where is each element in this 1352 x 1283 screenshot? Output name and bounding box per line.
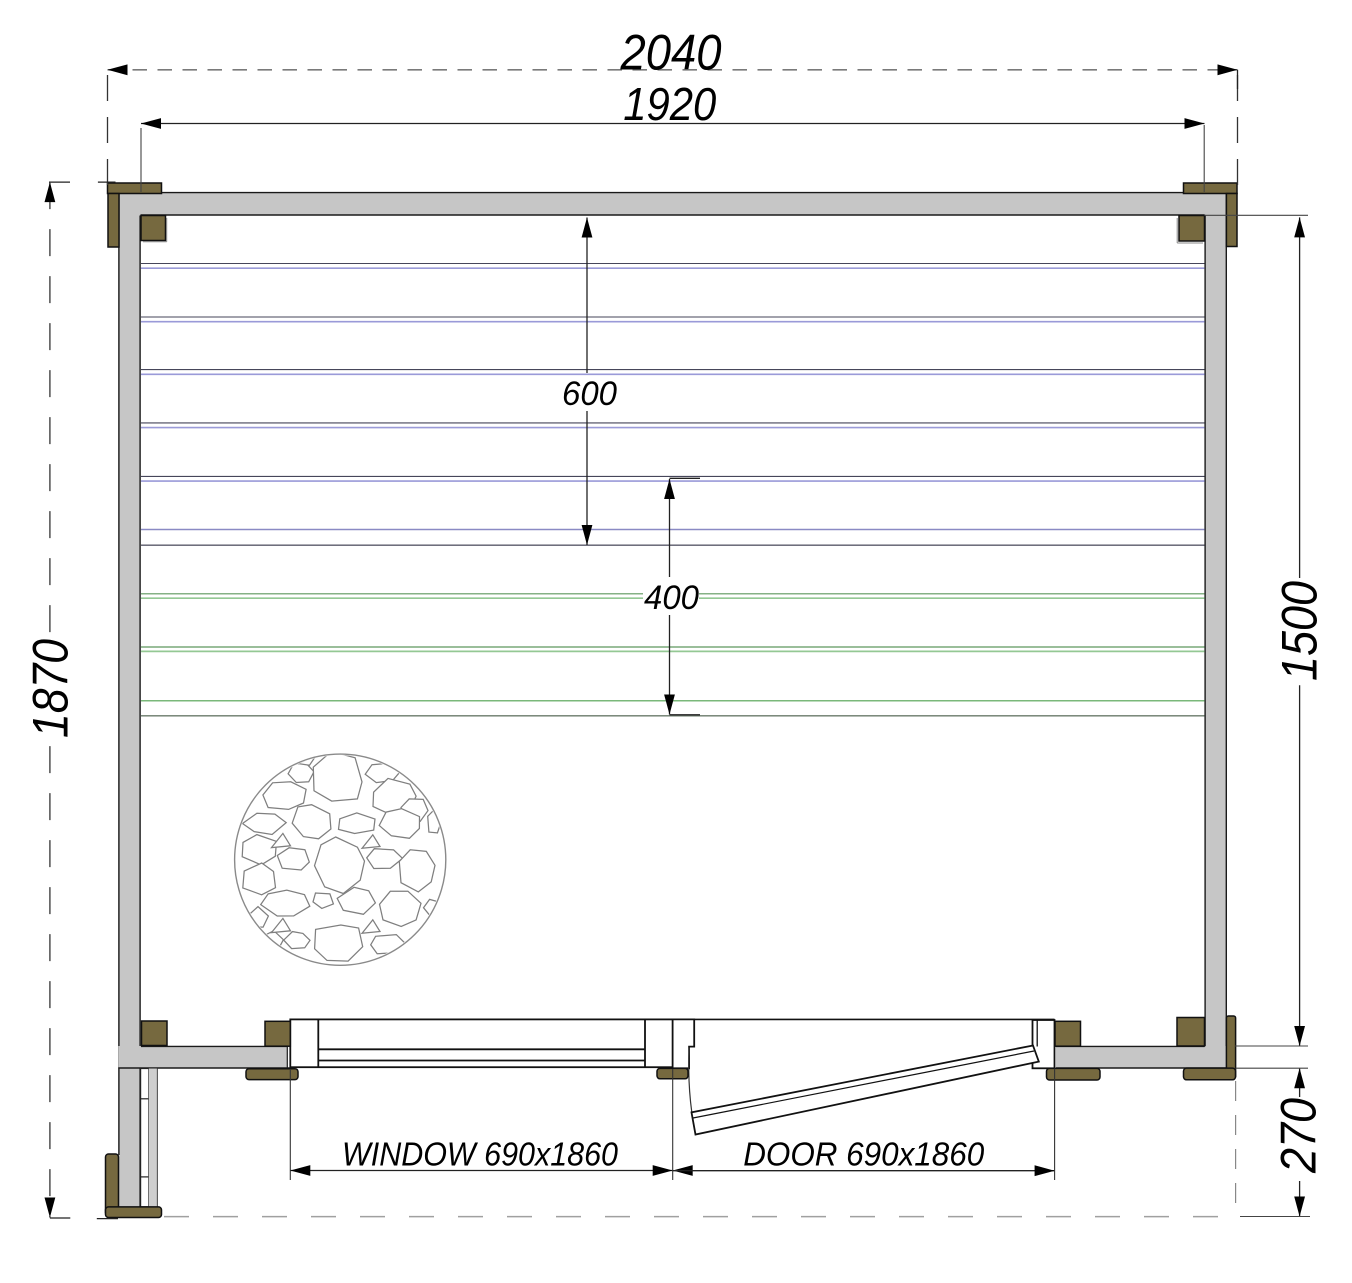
svg-text:2040: 2040	[620, 25, 722, 81]
svg-text:1870: 1870	[23, 639, 79, 738]
svg-text:400: 400	[644, 579, 699, 617]
svg-text:270: 270	[1271, 1098, 1327, 1174]
svg-text:600: 600	[562, 375, 617, 413]
svg-text:1920: 1920	[623, 78, 716, 130]
svg-text:DOOR 690x1860: DOOR 690x1860	[743, 1136, 985, 1173]
svg-text:1500: 1500	[1272, 581, 1328, 681]
svg-text:WINDOW 690x1860: WINDOW 690x1860	[342, 1135, 619, 1172]
